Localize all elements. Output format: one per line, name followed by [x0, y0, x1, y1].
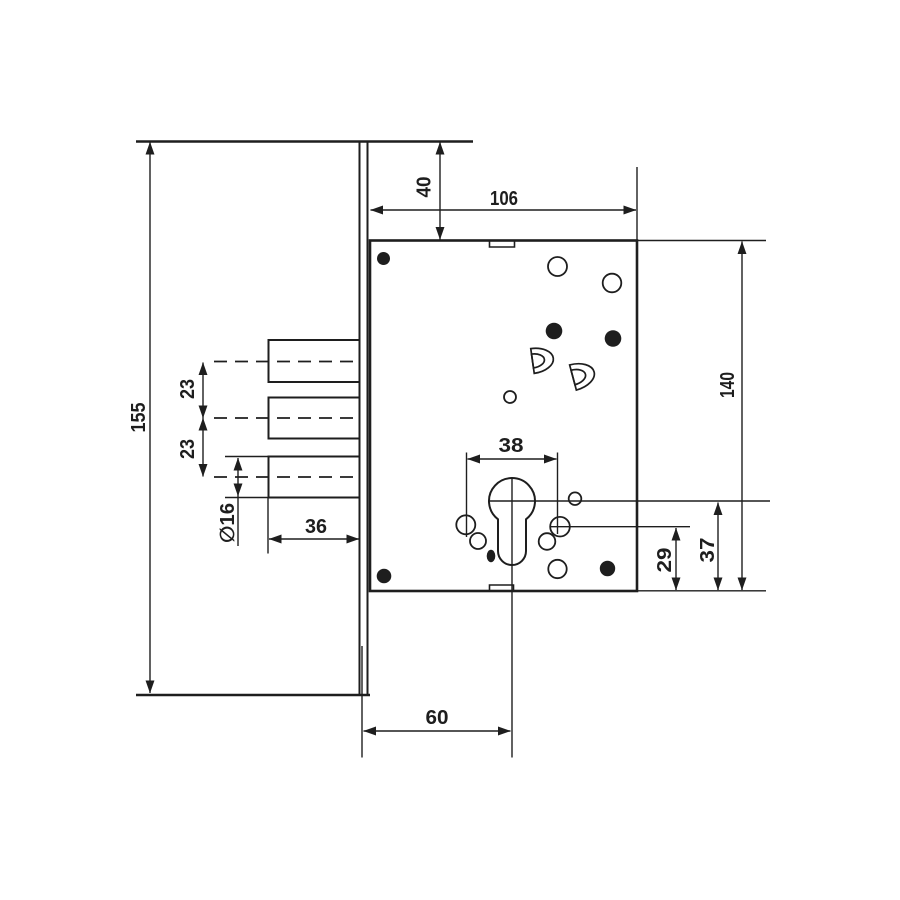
- dim-106-label: 106: [490, 188, 518, 210]
- top-notch: [490, 242, 515, 248]
- rivet-dot: [546, 323, 563, 340]
- rivet-dot: [377, 569, 392, 584]
- hole-circle: [470, 533, 486, 549]
- spring-clips: [531, 346, 598, 390]
- hole-circle: [548, 257, 567, 276]
- hole-circle: [569, 492, 582, 505]
- bottom-notch: [490, 585, 514, 590]
- spring-clip: [531, 346, 555, 374]
- dim-38-label: 38: [499, 435, 524, 457]
- dimensions: 155 40 106 140 23 23 ∅16 36 38: [128, 142, 766, 758]
- dim-155-label: 155: [128, 403, 150, 433]
- rivet-dot: [605, 330, 622, 347]
- dim-60-label: 60: [426, 707, 449, 729]
- dim-36-label: 36: [305, 516, 327, 538]
- holes: [456, 257, 621, 578]
- dim-40-label: 40: [414, 177, 436, 198]
- rivet-dot: [600, 561, 615, 576]
- hole-circle: [504, 391, 516, 403]
- rivet-dot: [487, 550, 496, 562]
- hole-circle: [539, 533, 556, 550]
- dim-140-label: 140: [717, 372, 739, 398]
- dim-16-label: ∅16: [217, 503, 239, 543]
- hole-circle: [603, 274, 622, 293]
- dim-23-lower-label: 23: [177, 439, 199, 459]
- deadbolts: [214, 340, 360, 498]
- hole-circle: [548, 560, 566, 578]
- lock-outline: [136, 142, 637, 696]
- rivet-dot: [377, 252, 390, 265]
- dim-29-label: 29: [654, 548, 676, 573]
- dim-23-upper-label: 23: [177, 379, 199, 399]
- spring-clip: [570, 359, 598, 390]
- cylinder-keyhole: [489, 478, 770, 757]
- technical-drawing-canvas: 155 40 106 140 23 23 ∅16 36 38: [0, 0, 900, 900]
- lock-dimension-drawing: 155 40 106 140 23 23 ∅16 36 38: [0, 0, 900, 900]
- lock-body-outline: [370, 241, 637, 592]
- dim-37-label: 37: [697, 538, 719, 563]
